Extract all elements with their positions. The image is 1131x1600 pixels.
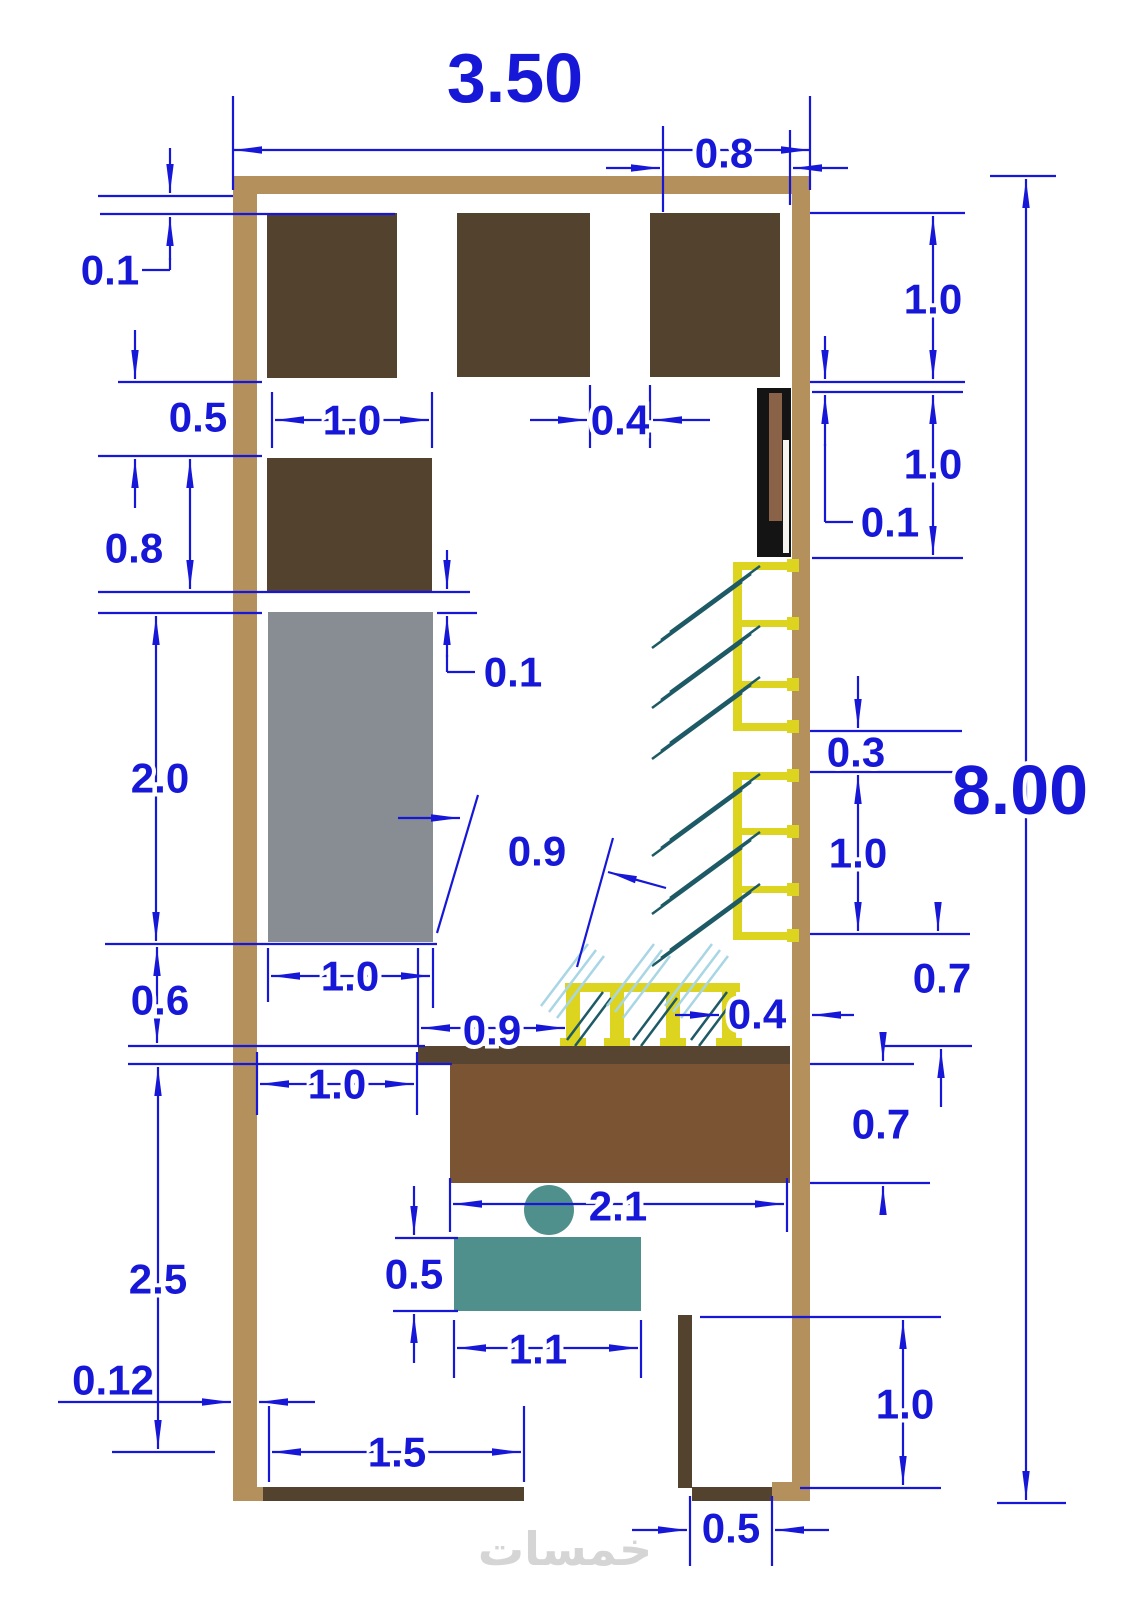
floor-plan-page: 3.50 0.8 0.1 0.5 <box>0 0 1131 1600</box>
gray-cabinet <box>268 612 433 942</box>
dim-stand-gap-label: 0.4 <box>728 991 787 1038</box>
glass-line <box>652 642 742 708</box>
dim-niche-w: 0.5 <box>632 1496 829 1566</box>
dim-gray-width-label: 1.0 <box>321 953 379 1000</box>
niche-partition-vertical <box>678 1315 692 1488</box>
dim-tick-slant <box>437 795 478 933</box>
desk <box>454 1237 641 1311</box>
dim-top-recess: 0.8 <box>606 126 848 212</box>
shelf2-wall-tab-3 <box>787 883 799 896</box>
dim-shelf-h-label: 1.0 <box>829 830 887 877</box>
shelf2-wall-tab-1 <box>787 769 799 782</box>
dim-tick-slant <box>577 838 613 967</box>
dim-right-block-h: 1.0 <box>810 213 965 382</box>
dim-counter-left: 1.0 <box>257 1052 417 1115</box>
cabinet-block-left <box>267 458 432 592</box>
door-fixture <box>757 388 791 557</box>
door-fixture-panel <box>769 393 782 521</box>
glass-line-light <box>607 944 654 1006</box>
top-wall <box>233 176 810 194</box>
entrance-display-strip <box>263 1487 524 1501</box>
dim-left-cabinet-label: 0.8 <box>105 525 163 572</box>
dim-shelf-floor-gap-label: 0.7 <box>913 955 971 1002</box>
dim-desk-len: 1.1 <box>454 1320 641 1378</box>
glass-line-light <box>673 950 720 1012</box>
display-stand-foot-4 <box>716 1038 742 1047</box>
display-stand-rail <box>565 983 740 992</box>
glass-dark-lines <box>567 566 760 1046</box>
dim-counter-setback-label: 0.9 <box>463 1007 521 1054</box>
cabinet-block-3 <box>650 213 780 377</box>
dim-shelf-h: 1.0 <box>810 775 970 934</box>
bottom-right-wall-foot <box>772 1482 810 1501</box>
dim-shelf-gap-label: 0.3 <box>827 729 885 776</box>
shelf2-left-rail <box>733 772 742 940</box>
shelf1-rail-3 <box>733 681 792 688</box>
counter-body <box>450 1064 790 1183</box>
shelf-units <box>560 559 799 1047</box>
dim-top-clearance-label: 0.1 <box>81 247 139 294</box>
dim-desk-len-label: 1.1 <box>509 1326 567 1373</box>
dim-mid-gap-label: 0.6 <box>131 977 189 1024</box>
shelf1-rail-2 <box>733 620 792 627</box>
glass-line <box>652 900 742 966</box>
glass-line <box>652 693 742 759</box>
dim-gray-clearance-label: 0.1 <box>484 649 542 696</box>
dim-counter-depth-label: 0.7 <box>852 1101 910 1148</box>
dim-gray-clearance: 0.1 <box>437 550 542 696</box>
shelf1-wall-tab-1 <box>787 559 799 572</box>
glass-line <box>652 848 742 914</box>
dim-overall-height: 8.00 <box>952 176 1088 1503</box>
watermark: خمسات <box>478 1522 652 1576</box>
dim-door-h-label: 1.0 <box>904 441 962 488</box>
display-stand-foot-3 <box>660 1038 686 1047</box>
glass-line <box>652 790 742 856</box>
dim-overall-width-label: 3.50 <box>447 39 583 117</box>
dim-counter-depth: 0.7 <box>810 1036 930 1212</box>
dim-top-recess-label: 0.8 <box>695 130 753 177</box>
dim-lower-left-len-label: 2.5 <box>129 1256 187 1303</box>
door-fixture-glass <box>783 440 789 553</box>
dim-counter-setback: 0.9 <box>418 948 565 1054</box>
shelf2-rail-4 <box>733 932 792 940</box>
stool <box>524 1185 574 1235</box>
dim-aisle: 0.9 <box>398 795 666 967</box>
dim-niche-h-label: 1.0 <box>876 1381 934 1428</box>
floor-plan-canvas: 3.50 0.8 0.1 0.5 <box>0 0 1131 1600</box>
dim-counter-len: 2.1 <box>450 1178 787 1232</box>
dim-gray-cabinet-len-label: 2.0 <box>131 755 189 802</box>
dim-overall-height-label: 8.00 <box>952 751 1088 829</box>
dim-block-width: 1.0 <box>272 392 432 448</box>
dim-block-gap-label: 0.4 <box>591 397 650 444</box>
shelf2-wall-tab-2 <box>787 825 799 838</box>
shelf1-wall-tab-4 <box>787 720 799 733</box>
display-stand-foot-2 <box>604 1038 630 1047</box>
dim-left-gap-label: 0.5 <box>169 394 227 441</box>
glass-line-light <box>615 950 662 1012</box>
display-stand-foot-1 <box>560 1038 586 1047</box>
cabinet-block-2 <box>457 213 590 377</box>
niche-partition-bottom <box>692 1487 772 1501</box>
left-wall <box>233 176 257 1501</box>
glass-line-light <box>665 944 712 1006</box>
dim-wall-thk-label: 0.12 <box>72 1357 154 1404</box>
dim-arrow <box>608 872 666 888</box>
shelf1-wall-tab-3 <box>787 678 799 691</box>
bottom-left-wall-foot <box>233 1487 267 1501</box>
dim-door-gap-label: 0.1 <box>861 499 919 546</box>
shelf2-wall-tab-4 <box>787 929 799 942</box>
dim-desk-depth-label: 0.5 <box>385 1251 443 1298</box>
dim-block-width-label: 1.0 <box>323 397 381 444</box>
dim-stand-gap: 0.4 <box>675 991 854 1038</box>
shelf1-rail-4 <box>733 723 792 731</box>
dim-niche-h: 1.0 <box>700 1317 941 1488</box>
dim-block-gap: 0.4 <box>530 385 710 448</box>
shelf1-wall-tab-2 <box>787 617 799 630</box>
dim-entrance-len-label: 1.5 <box>368 1429 426 1476</box>
dim-mid-gap: 0.6 <box>128 947 425 1046</box>
dim-right-block-h-label: 1.0 <box>904 276 962 323</box>
dim-counter-left-label: 1.0 <box>308 1061 366 1108</box>
shelf2-rail-1 <box>733 772 792 780</box>
dim-gray-width: 1.0 <box>268 948 433 1008</box>
dim-aisle-label: 0.9 <box>508 828 566 875</box>
dim-entrance-len: 1.5 <box>269 1406 524 1482</box>
shelf2-rail-3 <box>733 886 792 893</box>
glass-line <box>652 582 742 648</box>
dim-counter-len-label: 2.1 <box>589 1183 647 1230</box>
dim-wall-thk: 0.12 <box>58 1357 315 1404</box>
dim-desk-depth: 0.5 <box>385 1186 458 1363</box>
shelf1-rail-1 <box>733 562 792 570</box>
shelf2-rail-2 <box>733 828 792 835</box>
dim-shelf-gap: 0.3 <box>810 676 962 776</box>
cabinet-block-1 <box>267 213 397 378</box>
dim-niche-w-label: 0.5 <box>702 1505 760 1552</box>
right-wall <box>792 176 810 1501</box>
